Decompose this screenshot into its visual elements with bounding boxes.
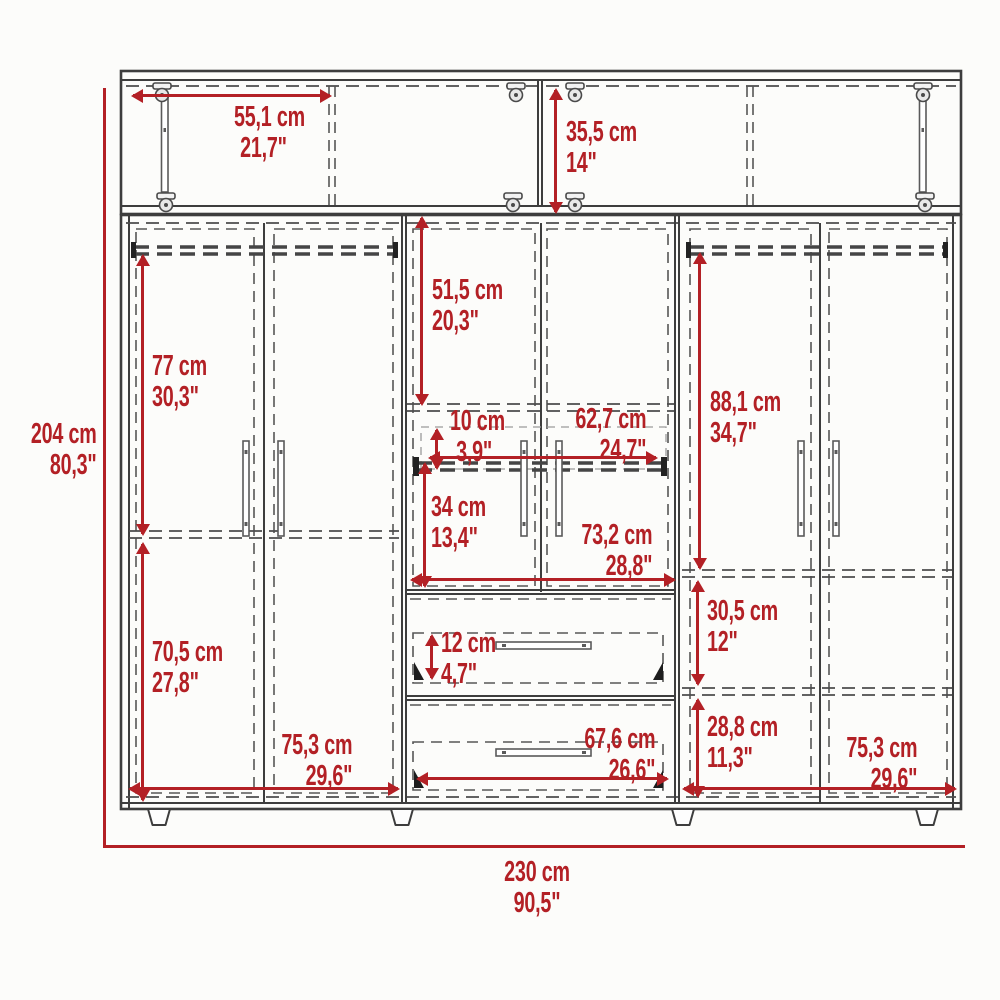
overall-width-label: 230 cm90,5": [435, 857, 639, 918]
main-body: [121, 215, 961, 809]
overall-height-line: [103, 88, 106, 848]
feet: [148, 809, 938, 825]
roller-icon: [507, 83, 525, 102]
drawer-handle: [496, 749, 591, 756]
right-door-outline: [690, 229, 811, 793]
roller-icon: [566, 193, 584, 212]
roller-icon: [916, 193, 934, 212]
door-handles: [798, 441, 839, 536]
overall-width-line: [103, 845, 965, 848]
foot: [916, 809, 938, 825]
top-cabinet-center-divider: [538, 80, 542, 206]
right-door-outline: [829, 229, 947, 793]
wardrobe-dimension-diagram: 204 cm80,3" 230 cm90,5" 55,1 cm21,7" 35,…: [0, 0, 1000, 1000]
foot: [148, 809, 170, 825]
overall-height-label: 204 cm80,3": [31, 419, 97, 480]
hanging-rod: [686, 242, 948, 258]
foot: [391, 809, 413, 825]
drawer-handle: [496, 642, 591, 649]
left-door-outline: [274, 229, 393, 793]
left-section: [129, 223, 399, 803]
roller-icon: [157, 193, 175, 212]
roller-icon: [566, 83, 584, 102]
wardrobe-line-drawing: [0, 0, 1000, 1000]
roller-icon: [914, 83, 932, 102]
left-door-outline: [136, 229, 254, 793]
roller-icon: [504, 193, 522, 212]
foot: [672, 809, 694, 825]
